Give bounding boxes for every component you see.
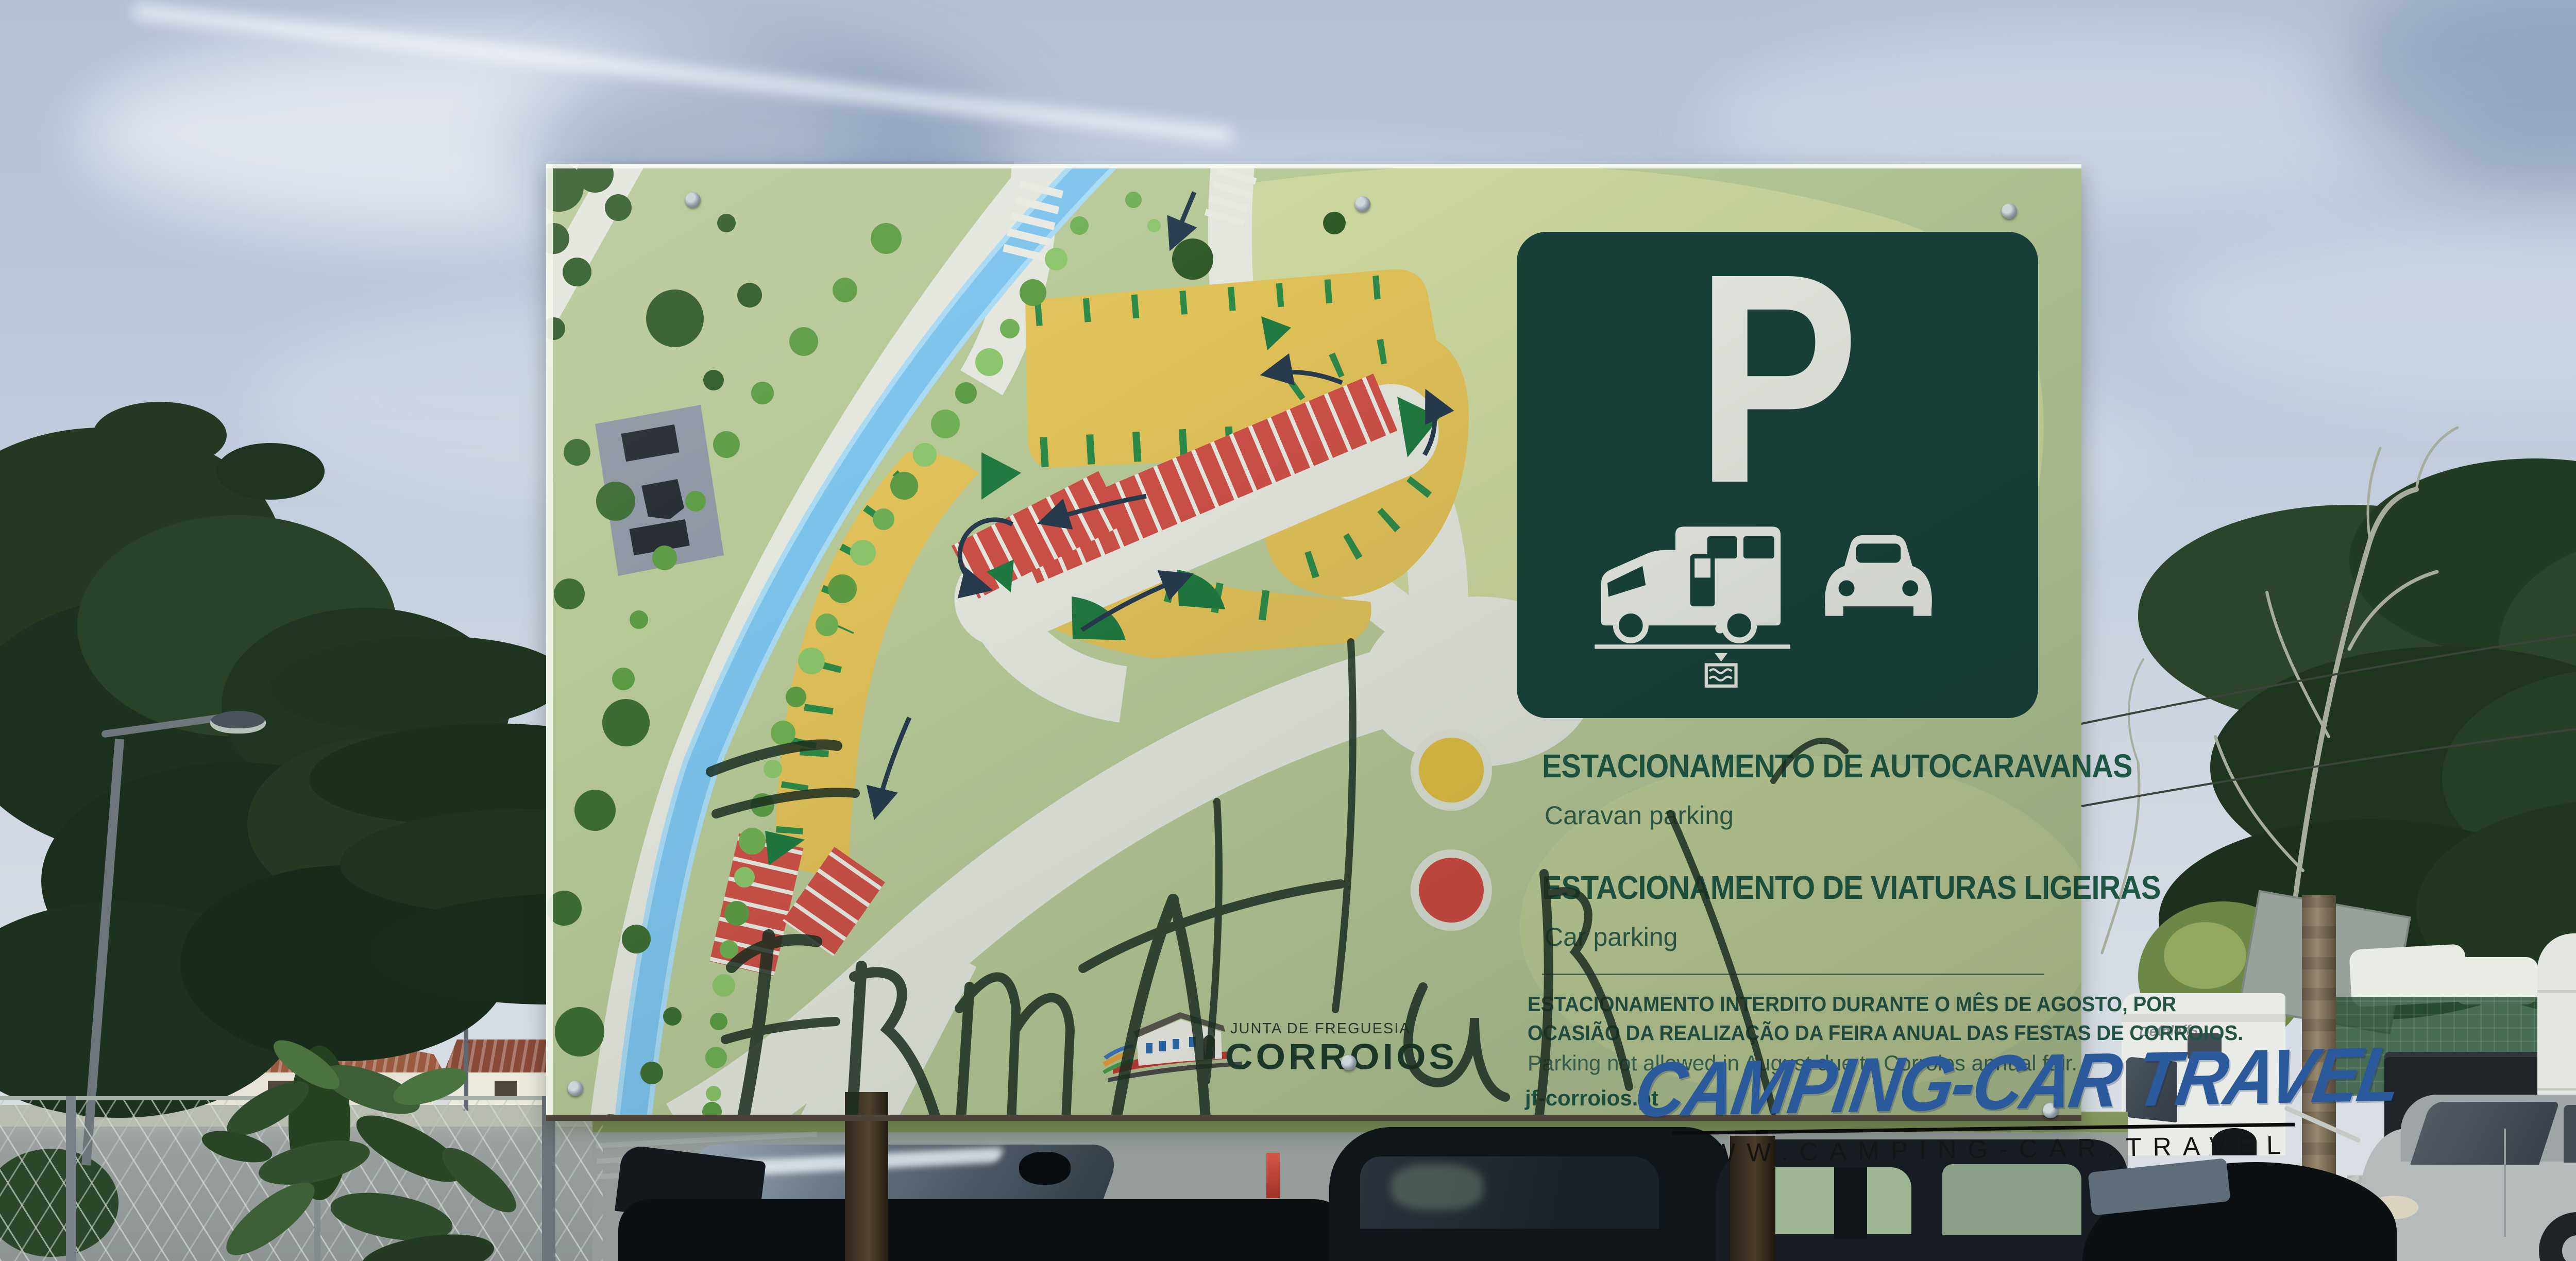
parked-car: [618, 1199, 1355, 1261]
car-window: [2564, 1105, 2576, 1163]
car-mirror: [1019, 1152, 1071, 1185]
street-lamp-head: [210, 711, 266, 734]
photo-scene: Dethleffs: [0, 0, 2576, 1261]
window-reflection: [1391, 1164, 1484, 1211]
car-pillar: [1834, 1167, 1867, 1239]
screw-icon: [1355, 196, 1370, 212]
power-lines: [2081, 626, 2576, 806]
sign-edge: [546, 164, 553, 1121]
screw-icon: [568, 1081, 583, 1096]
pine-tree: [216, 443, 325, 500]
door-seam: [2504, 1129, 2506, 1237]
sign-edge: [546, 164, 2081, 168]
screw-icon: [2002, 203, 2017, 219]
watermark-brand: CAMPING-CAR TRAVEL: [1629, 1029, 2406, 1134]
fence-post: [66, 1096, 76, 1261]
screw-icon: [685, 192, 701, 208]
screw-icon: [1341, 1055, 1357, 1070]
car-window: [1752, 1167, 1911, 1234]
parking-sign-board: P: [546, 164, 2081, 1121]
car-windshield: [2410, 1102, 2560, 1165]
pine-tree: [93, 402, 227, 469]
taillight: [1266, 1153, 1280, 1198]
graffiti-scrawl: [546, 164, 2081, 1121]
fence-post: [542, 1096, 555, 1261]
car-window: [1942, 1164, 2081, 1235]
wheel: [2539, 1212, 2576, 1261]
